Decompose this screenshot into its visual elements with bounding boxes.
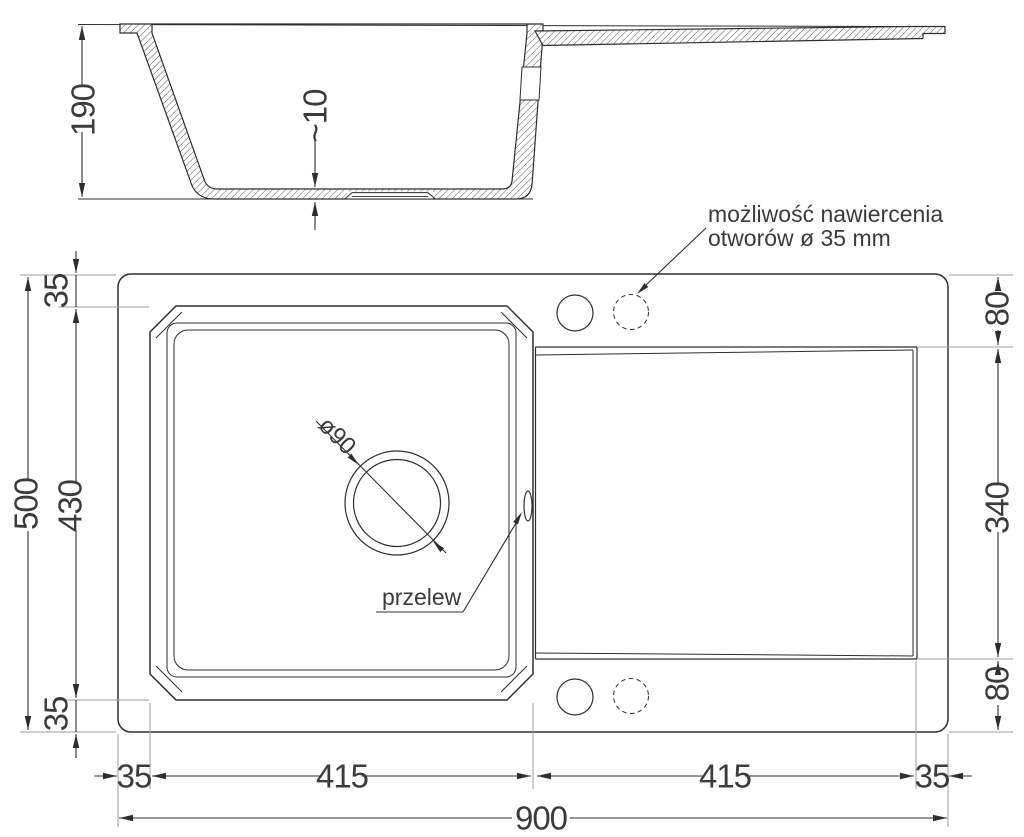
section-dim-10: ~10 xyxy=(297,89,334,230)
section-view: 190 ~10 xyxy=(65,24,946,230)
drill-note-leader xyxy=(646,228,706,285)
optional-hole-top xyxy=(614,295,649,330)
dim-label-500: 500 xyxy=(8,477,45,530)
drainer-board xyxy=(536,347,918,659)
dim-430: 430 xyxy=(52,309,89,698)
dim-label-415-drainer: 415 xyxy=(699,758,751,795)
drill-note: możliwość nawiercenia otworów ø 35 mm xyxy=(637,201,943,294)
drill-note-line2: otworów ø 35 mm xyxy=(708,225,891,251)
dim-900: 900 xyxy=(119,800,947,837)
dim-label-35-bottom: 35 xyxy=(38,697,75,732)
bowl xyxy=(150,306,533,700)
dim-label-35-left: 35 xyxy=(117,758,152,795)
dim-80-bottom: 80 xyxy=(979,661,1016,730)
faucet-hole-bottom xyxy=(557,679,593,715)
dim-label-80-top: 80 xyxy=(979,291,1016,326)
dim-label-190: 190 xyxy=(65,83,102,136)
drainer-surface-top xyxy=(536,350,914,355)
bowl-outer-rim xyxy=(150,306,533,700)
dim-35-left: 35 xyxy=(94,758,151,795)
drawing-canvas: 190 ~10 możliwość nawiercenia otworów ø … xyxy=(0,0,1024,837)
dim-415-drainer: 415 xyxy=(537,758,914,795)
drain-diameter-label: ø90 xyxy=(313,412,361,460)
dim-label-10: ~10 xyxy=(297,89,334,143)
sink-technical-drawing: 190 ~10 możliwość nawiercenia otworów ø … xyxy=(0,0,1024,837)
bowl-opening-edge xyxy=(174,330,509,670)
overflow-label: przelew xyxy=(382,584,462,610)
section-rim-top-line xyxy=(78,25,911,27)
section-dim-190: 190 xyxy=(65,26,102,197)
left-dimensions: 500 35 430 35 xyxy=(8,251,89,758)
section-overflow-gap xyxy=(520,67,541,100)
dim-340: 340 xyxy=(979,349,1016,657)
bowl-corner-chamfer-br xyxy=(501,666,527,692)
drain: ø90 xyxy=(313,412,449,555)
dim-35-right: 35 xyxy=(915,758,972,795)
faucet-holes xyxy=(557,295,649,716)
overflow-callout: przelew xyxy=(376,512,522,612)
dim-label-80-bottom: 80 xyxy=(979,666,1016,701)
dim-label-430: 430 xyxy=(52,479,89,532)
dim-500: 500 xyxy=(8,277,45,730)
bowl-inner-rim xyxy=(167,323,516,677)
bowl-corner-chamfer-bl xyxy=(156,666,182,692)
section-drain-recess xyxy=(345,192,435,199)
dim-label-35-top: 35 xyxy=(38,274,75,309)
faucet-hole-top xyxy=(557,295,593,331)
dim-35-bottom-left: 35 xyxy=(38,697,77,758)
overflow-slot xyxy=(524,491,532,521)
dim-415-bowl: 415 xyxy=(152,758,531,795)
dim-label-35-right: 35 xyxy=(915,758,950,795)
overflow-leader xyxy=(463,523,516,612)
section-drainboard xyxy=(535,27,945,46)
right-dimensions: 80 340 80 xyxy=(979,277,1016,730)
dim-35-top-left: 35 xyxy=(38,251,77,308)
overflow-arrow xyxy=(513,512,522,525)
plan-view: ø90 przelew xyxy=(118,274,948,732)
dim-label-340: 340 xyxy=(979,481,1016,534)
optional-hole-bottom xyxy=(614,679,649,714)
dim-label-900: 900 xyxy=(515,800,568,837)
dim-label-415-bowl: 415 xyxy=(316,758,368,795)
drill-note-line1: możliwość nawiercenia xyxy=(708,201,943,227)
drain-diameter-arrow-2 xyxy=(433,541,444,552)
dim-80-top: 80 xyxy=(979,277,1016,345)
drainer-surface-bottom xyxy=(536,653,914,656)
